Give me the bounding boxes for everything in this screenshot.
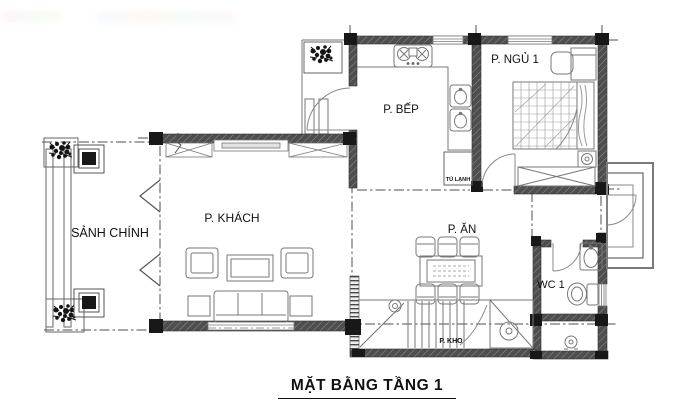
wardrobe-icon [518,167,595,186]
break-line [140,180,160,212]
armchair-icon [281,248,313,278]
armchair-icon [186,248,218,278]
dining-chair-icon [460,284,479,304]
walls [161,36,608,359]
window [599,284,606,306]
dining-chair-icon [460,237,479,257]
room-label-bedroom-1: P. NGỦ 1 [491,53,539,66]
porch-column [74,289,104,317]
floor-plan-drawing: P. NGỦ 1 P. BẾP P. KHÁCH SẢNH CHÍNH P. Ă… [0,0,680,418]
room-dining [416,237,482,304]
bed-icon [513,82,594,149]
room-label-living: P. KHÁCH [204,210,259,225]
window [214,140,288,151]
side-table-icon [188,296,210,316]
room-label-wc-1: WC 1 [537,279,565,291]
room-label-kitchen: P. BẾP [383,103,419,116]
label-storage: P. KHO [439,338,463,345]
stool-icon [551,52,573,74]
dining-chair-icon [438,284,457,304]
window-sill [166,143,212,157]
side-table-icon [290,296,312,316]
room-label-dining: P. ĂN [448,223,477,236]
stair-flight-line [360,303,404,347]
window [208,322,294,330]
porch-rail [46,149,53,327]
dining-table-icon [420,256,482,286]
toilet-icon [568,283,599,305]
sofa-icon [214,291,288,322]
kitchen-sink-icon [450,85,471,131]
room-wc-1 [553,243,602,349]
plant-icon [49,141,72,159]
dresser-icon [571,48,596,80]
nightstand-icon [578,151,596,167]
break-line [140,254,160,286]
stair-side-wall [350,276,359,350]
dining-chair-icon [416,284,435,304]
label-fridge: TỦ LẠNH [446,176,471,183]
dining-chair-icon [416,237,435,257]
stair-start [389,300,401,312]
coffee-table-icon [227,255,273,281]
dining-chair-icon [438,237,457,257]
window-sill [289,143,347,157]
floor-plan-canvas: P. NGỦ 1 P. BẾP P. KHÁCH SẢNH CHÍNH P. Ă… [0,0,680,418]
room-label-main-hall: SẢNH CHÍNH [71,225,149,240]
side-entry [606,163,653,268]
side-door [606,195,636,225]
wc-door [553,243,581,271]
plant-icon [310,45,333,63]
porch-column [74,145,104,173]
room-living [186,248,313,322]
window [433,36,463,44]
porch-rail [64,149,71,327]
stove-icon [394,45,432,67]
floor-drain-icon [564,336,578,349]
entry-steps [607,163,653,268]
bedroom-door [482,154,515,187]
room-bedroom-1 [482,48,596,187]
window [508,36,552,44]
plan-title: MẶT BẰNG TẦNG 1 [278,377,456,399]
